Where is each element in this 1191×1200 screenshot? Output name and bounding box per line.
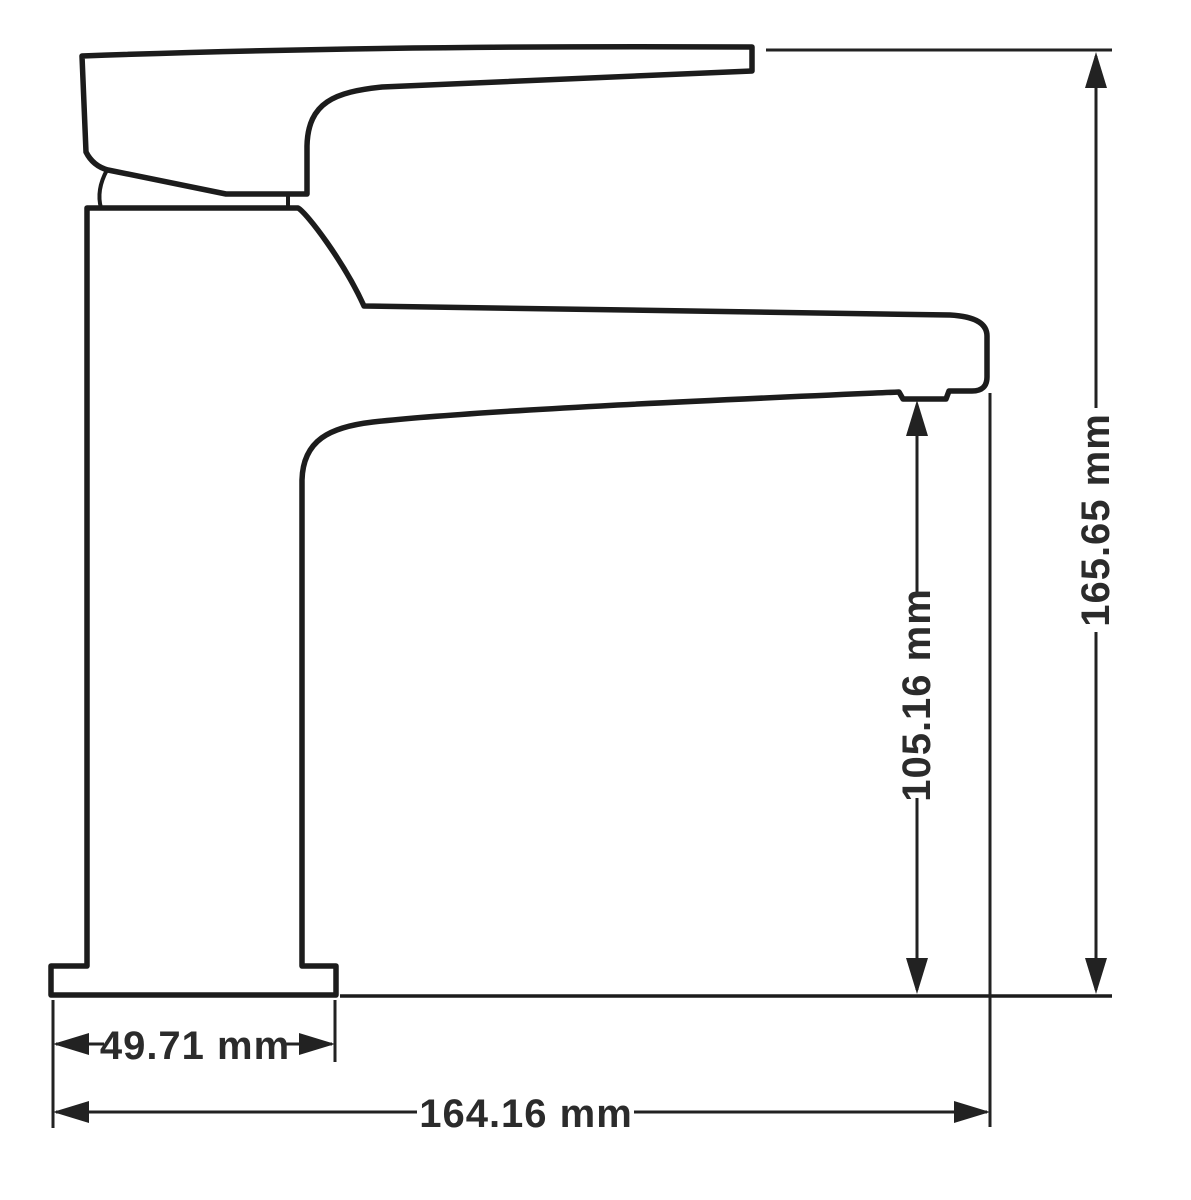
overall-height-label: 165.65 mm xyxy=(1074,413,1118,627)
dimension-base-width: 49.71 mm xyxy=(53,1024,335,1068)
faucet-body-spout-outline xyxy=(51,208,987,995)
arrow-down-icon xyxy=(1085,958,1107,994)
dimension-overall-height: 165.65 mm xyxy=(1074,52,1118,994)
arrow-right-icon xyxy=(299,1033,335,1055)
arrow-left-icon xyxy=(53,1101,89,1123)
dimension-overall-depth: 164.16 mm xyxy=(53,1092,990,1136)
base-width-label: 49.71 mm xyxy=(100,1024,290,1068)
arrow-left-icon xyxy=(53,1033,89,1055)
spout-outlet-height-label: 105.16 mm xyxy=(895,588,939,802)
technical-drawing-canvas: 165.65 mm 105.16 mm 49.71 mm 164.16 mm xyxy=(0,0,1191,1200)
arrow-down-icon xyxy=(906,958,928,994)
dimension-spout-outlet-height: 105.16 mm xyxy=(895,400,939,994)
arrow-right-icon xyxy=(954,1101,990,1123)
arrow-up-icon xyxy=(1085,52,1107,88)
arrow-up-icon xyxy=(906,400,928,436)
handle-pivot-seam xyxy=(99,170,107,208)
faucet-dimension-drawing: 165.65 mm 105.16 mm 49.71 mm 164.16 mm xyxy=(0,0,1191,1200)
faucet-handle-outline xyxy=(82,47,752,194)
overall-depth-label: 164.16 mm xyxy=(419,1092,633,1136)
